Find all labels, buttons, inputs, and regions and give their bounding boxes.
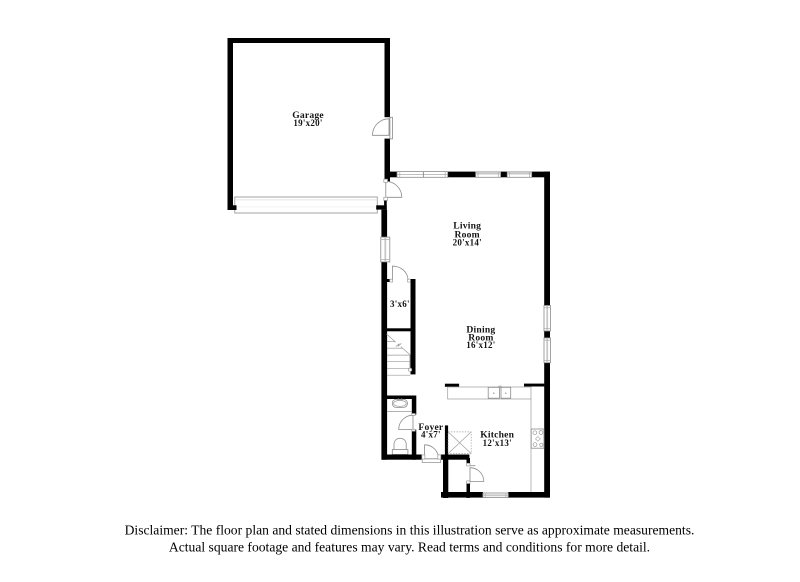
svg-text:3'x6': 3'x6'	[390, 299, 410, 309]
svg-text:12'x13': 12'x13'	[483, 438, 512, 448]
svg-text:Disclaimer: The floor plan and: Disclaimer: The floor plan and stated di…	[125, 522, 695, 537]
svg-text:16'x12': 16'x12'	[466, 340, 495, 350]
svg-text:19'x20': 19'x20'	[293, 118, 322, 128]
svg-text:4'x7': 4'x7'	[421, 429, 441, 439]
svg-text:Actual square footage and feat: Actual square footage and features may v…	[169, 539, 650, 554]
svg-text:20'x14': 20'x14'	[453, 237, 482, 247]
